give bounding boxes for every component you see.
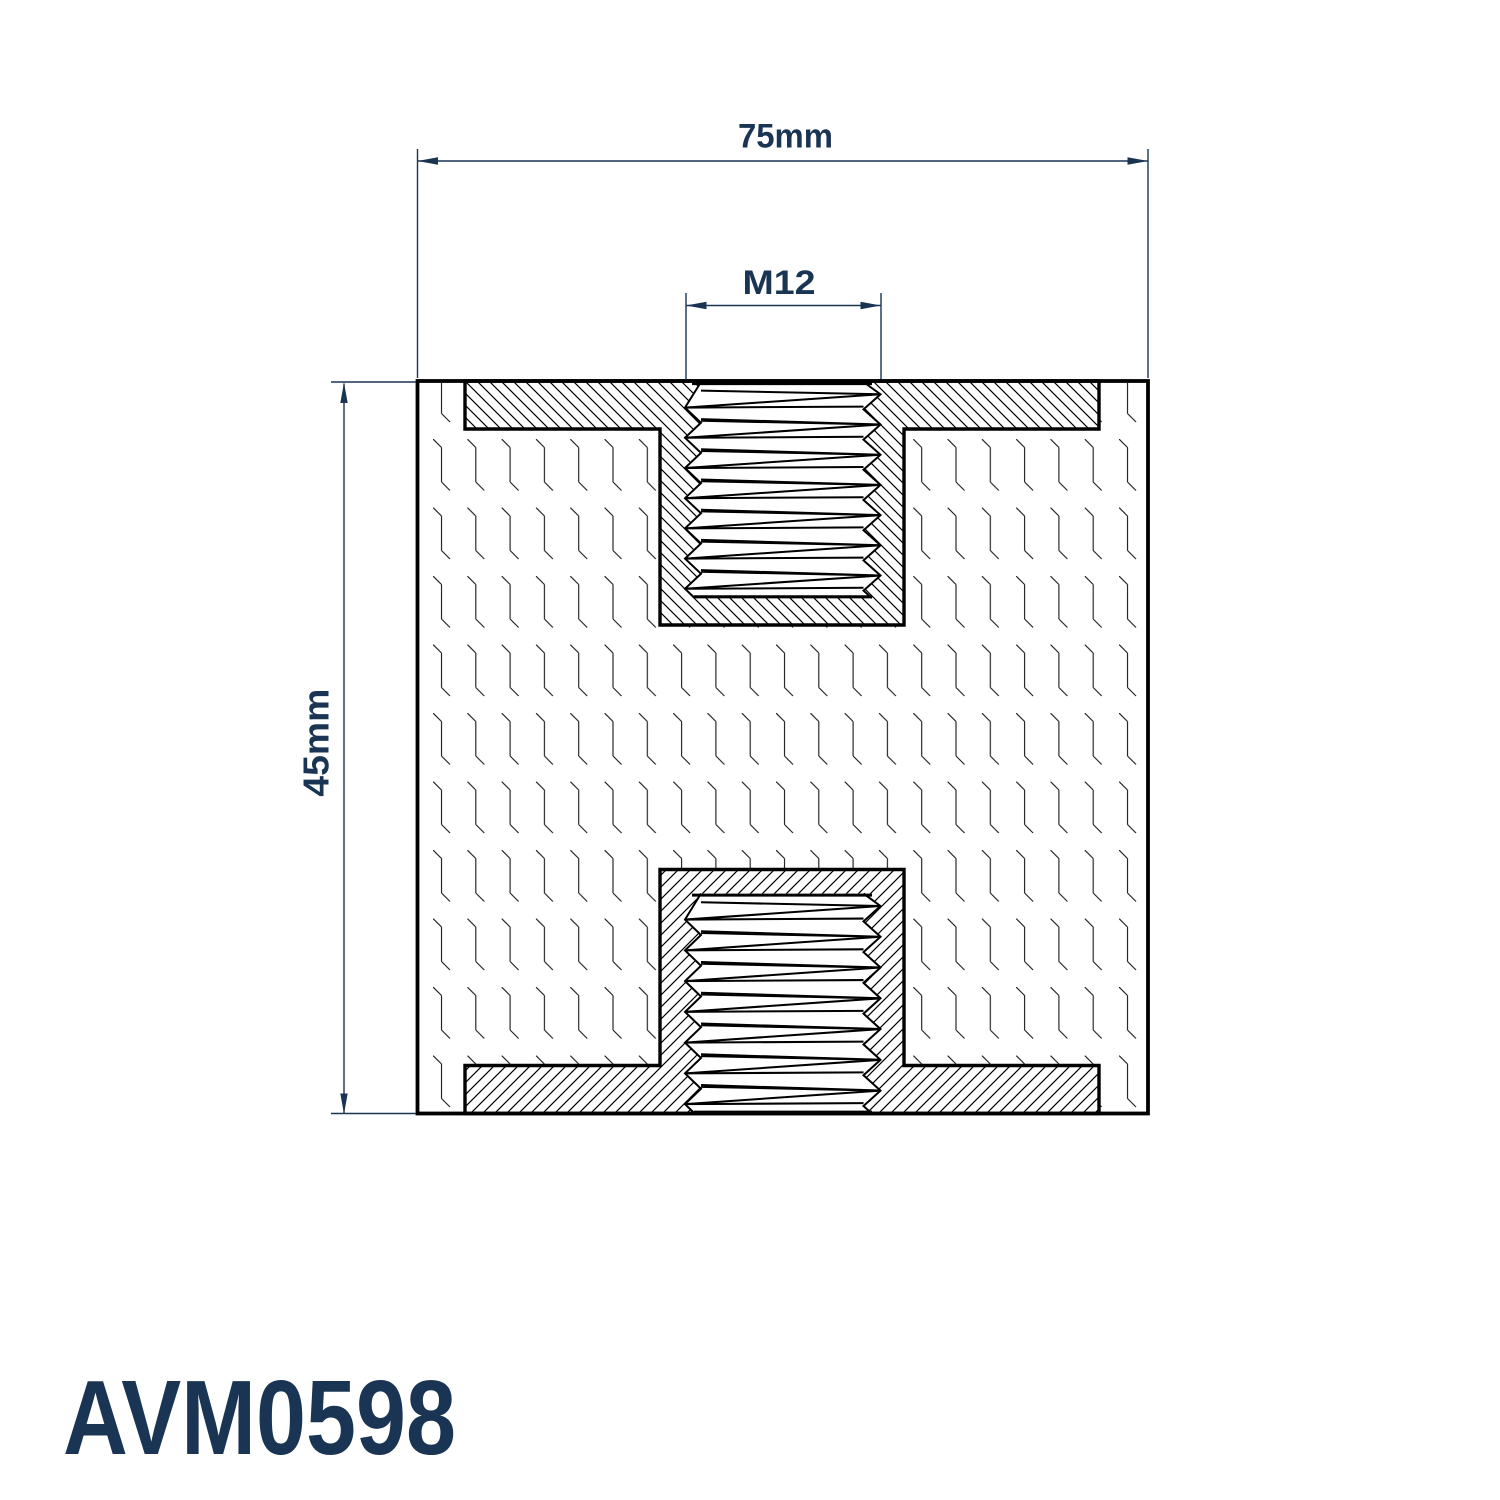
svg-text:AVM0598: AVM0598 [63,1359,456,1477]
svg-text:45mm: 45mm [296,689,337,797]
svg-text:75mm: 75mm [738,118,833,156]
svg-text:M12: M12 [743,264,816,302]
